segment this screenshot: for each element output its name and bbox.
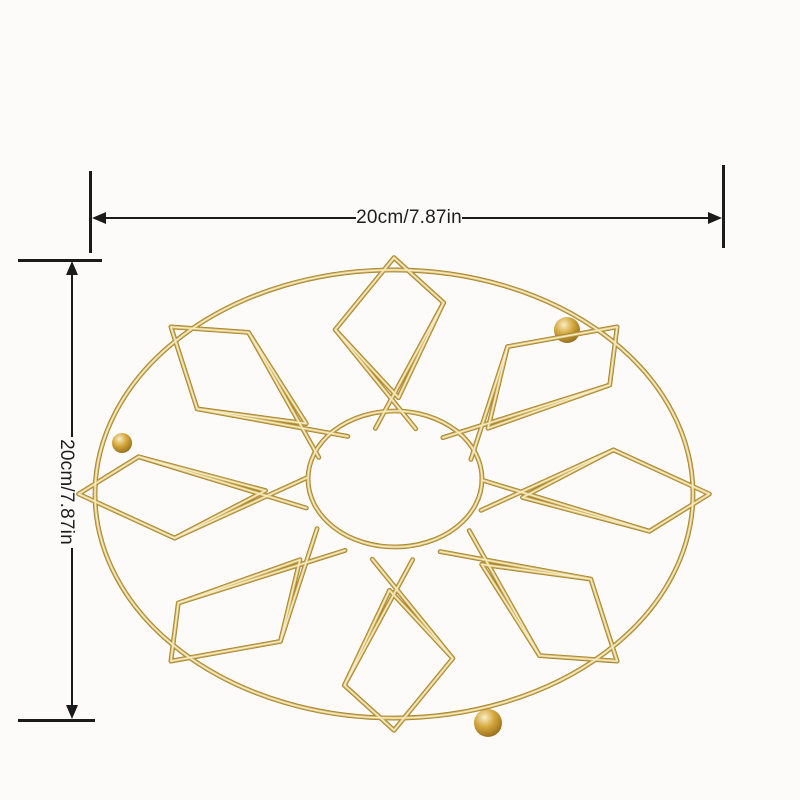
width-line-right-segment bbox=[462, 217, 712, 219]
height-line-bottom-segment bbox=[71, 548, 73, 708]
height-arrow-up-icon bbox=[66, 261, 78, 275]
product-dimension-image: 20cm/7.87in 20cm/7.87in bbox=[0, 0, 800, 800]
trivet-wire bbox=[249, 332, 319, 457]
trivet-wire bbox=[139, 457, 307, 508]
trivet-wire bbox=[171, 327, 306, 424]
height-arrow-down-icon bbox=[66, 705, 78, 719]
trivet-wire bbox=[344, 560, 412, 686]
height-line-top-segment bbox=[71, 264, 73, 437]
trivet-wire bbox=[469, 531, 539, 656]
trivet-wire bbox=[308, 411, 482, 547]
width-dimension-label: 20cm/7.87in bbox=[346, 207, 472, 229]
trivet-wire bbox=[443, 385, 610, 438]
trivet-wire bbox=[178, 550, 345, 603]
trivet-wire bbox=[95, 270, 693, 718]
trivet-wire bbox=[488, 327, 617, 428]
trivet-wire bbox=[440, 552, 591, 580]
trivet-wire bbox=[171, 560, 300, 661]
trivet-wire bbox=[471, 347, 508, 460]
trivet-wire bbox=[95, 270, 693, 718]
trivet-wire bbox=[95, 270, 693, 718]
height-bottom-tick bbox=[18, 719, 95, 722]
height-top-tick bbox=[18, 259, 102, 262]
trivet-wire bbox=[171, 560, 300, 661]
trivet-wire bbox=[482, 564, 617, 661]
trivet-wire bbox=[482, 564, 617, 661]
trivet-wire bbox=[171, 327, 306, 424]
width-arrow-right-icon bbox=[708, 212, 722, 224]
trivet-wire bbox=[171, 560, 300, 661]
trivet-wire bbox=[280, 529, 317, 642]
height-dimension-label: 20cm/7.87in bbox=[55, 439, 77, 545]
width-arrow-left-icon bbox=[92, 212, 106, 224]
trivet-wire bbox=[488, 327, 617, 428]
trivet-ball-foot bbox=[112, 433, 132, 453]
trivet-wire bbox=[171, 327, 306, 424]
trivet-wire bbox=[488, 327, 617, 428]
width-line-left-segment bbox=[100, 217, 356, 219]
width-right-tick bbox=[722, 165, 725, 248]
gold-wire-trivet-image bbox=[0, 0, 800, 800]
trivet-wire bbox=[482, 480, 650, 531]
trivet-wire bbox=[197, 409, 348, 437]
trivet-wire bbox=[482, 564, 617, 661]
trivet-ball-foot bbox=[474, 709, 502, 737]
